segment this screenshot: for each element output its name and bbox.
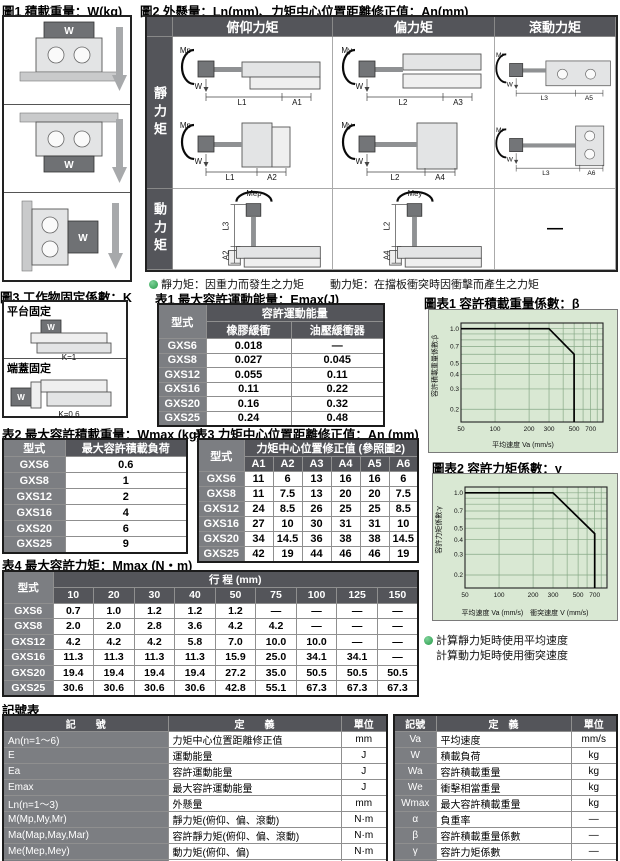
value-cell: 10.0: [296, 634, 337, 650]
value-cell: 4.2: [215, 619, 256, 635]
svg-text:300: 300: [544, 426, 555, 433]
value-cell: —: [337, 603, 378, 619]
fig2-dynamic-roll-cell: —: [495, 189, 616, 270]
value-cell: 15.9: [215, 650, 256, 666]
value-cell: 67.3: [296, 681, 337, 697]
value-cell: 4.2: [256, 619, 297, 635]
table2-model-header: 型式: [3, 439, 65, 457]
svg-text:A2: A2: [221, 251, 230, 261]
svg-text:Mep: Mep: [246, 189, 262, 198]
down-arrow-icon: [116, 119, 123, 167]
fig2-note-dynamic: 動力矩：在擋板衝突時因衝擊而產生之力矩: [330, 279, 539, 291]
definition-cell: 容許靜力矩(俯仰、偏、滾動): [168, 828, 341, 844]
definition-cell: 外懸量: [168, 796, 341, 812]
fig1-side-mount-diagram: W: [4, 193, 130, 281]
definition-cell: 動力矩(俯仰、偏): [168, 844, 341, 860]
chart2-xlabel: 平均速度 Va (mm/s) 衝突速度 V (mm/s): [433, 608, 617, 618]
value-cell: 2.0: [94, 619, 135, 635]
symbol-cell: E: [3, 748, 168, 764]
model-cell: GXS8: [3, 619, 53, 635]
value-cell: 20: [331, 487, 360, 502]
unit-cell: N·m: [341, 844, 387, 860]
value-cell: 19: [273, 547, 302, 562]
symbol-row: Emax 最大容許運動能量 J: [3, 780, 387, 796]
table-row: GXS20 19.4 19.4 19.4 19.4 27.2 35.0 50.5…: [3, 665, 418, 681]
table-row: GXS6 0.018 —: [158, 339, 384, 354]
table-row: GXS25 9: [3, 537, 187, 553]
fig3-endcap-mount-label: 端蓋固定: [7, 360, 123, 376]
dynamic-yaw-diagram: Mey L2 A4: [339, 189, 489, 269]
table-row: GXS16 0.11 0.22: [158, 382, 384, 397]
svg-text:W: W: [194, 157, 202, 166]
payload-bottom-diagram: W: [4, 105, 134, 193]
static-roll-diagram-1: Mr W L3 A5: [495, 44, 616, 106]
value-cell: 4.2: [134, 634, 175, 650]
stroke-125: 125: [337, 588, 378, 604]
model-cell: GXS25: [198, 547, 244, 562]
svg-text:Mp: Mp: [179, 121, 191, 130]
symbol-row: Va 平均速度 mm/s: [394, 732, 617, 748]
value-cell: 1.0: [94, 603, 135, 619]
unit-cell: kg: [571, 796, 617, 812]
unit-cell: mm: [341, 732, 387, 748]
table-row: GXS8 11 7.5 13 20 20 7.5: [198, 487, 418, 502]
svg-text:A3: A3: [453, 98, 463, 107]
value-cell: —: [296, 603, 337, 619]
symbol-row: We 衝擊相當重量 kg: [394, 780, 617, 796]
model-cell: GXS6: [3, 457, 65, 473]
svg-text:My: My: [341, 121, 352, 130]
symbol-cell: Emax: [3, 780, 168, 796]
symbol-cell: α: [394, 812, 436, 828]
static-pitch-diagram-2: Mp W L1 A2: [178, 115, 328, 185]
symbol-cell: β: [394, 828, 436, 844]
table3-sub-a4: A4: [331, 457, 360, 472]
table4-model-header: 型式: [3, 571, 53, 603]
value-cell: 8.5: [389, 502, 418, 517]
model-cell: GXS20: [158, 397, 206, 412]
value-cell: —: [337, 634, 378, 650]
table-mount-diagram: W K=1: [7, 319, 127, 361]
symbol-cell: Ma(Map,May,Mar): [3, 828, 168, 844]
table-row: GXS8 2.0 2.0 2.8 3.6 4.2 4.2 — — —: [3, 619, 418, 635]
definition-header: 定 義: [436, 715, 571, 732]
value-cell: 34.1: [296, 650, 337, 666]
fig3-table-mount: 平台固定 W K=1: [4, 302, 126, 359]
value-cell: 27.2: [215, 665, 256, 681]
value-cell: 11.3: [94, 650, 135, 666]
symbol-cell: W: [394, 748, 436, 764]
definition-cell: 容許積載重量係數: [436, 828, 571, 844]
fig3-diagram-box: 平台固定 W K=1 端蓋固定 W K=0.6: [2, 300, 128, 418]
value-cell: 25: [331, 502, 360, 517]
svg-text:L3: L3: [542, 170, 550, 177]
value-cell: 0.16: [206, 397, 291, 412]
table1-kinetic-energy: 型式 容許運動能量 橡膠緩衝 油壓緩衝器 GXS6 0.018 — GXS8 0…: [157, 303, 385, 427]
value-cell: 2.0: [53, 619, 94, 635]
table-row: GXS20 6: [3, 521, 187, 537]
model-cell: GXS25: [3, 681, 53, 697]
svg-text:W: W: [47, 323, 55, 332]
value-cell: 30.6: [94, 681, 135, 697]
model-cell: GXS25: [3, 537, 65, 553]
svg-text:1.0: 1.0: [450, 326, 459, 333]
unit-cell: N·m: [341, 812, 387, 828]
value-cell: 0.027: [206, 353, 291, 368]
value-cell: 14.5: [273, 532, 302, 547]
value-cell: 38: [331, 532, 360, 547]
value-cell: 14.5: [389, 532, 418, 547]
definition-cell: 運動能量: [168, 748, 341, 764]
value-cell: 4.2: [94, 634, 135, 650]
value-cell: 19.4: [53, 665, 94, 681]
svg-text:W: W: [17, 393, 25, 402]
chart1-panel: 容許積載重量係數:β 501002003005007001.00.70.50.4…: [428, 309, 618, 453]
svg-text:0.7: 0.7: [454, 508, 463, 515]
value-cell: 36: [302, 532, 331, 547]
value-cell: 11.3: [134, 650, 175, 666]
svg-text:300: 300: [548, 592, 559, 599]
definition-cell: 靜力矩(俯仰、偏、滾動): [168, 812, 341, 828]
value-cell: 4.2: [53, 634, 94, 650]
svg-text:A4: A4: [435, 173, 445, 182]
value-cell: 19: [389, 547, 418, 562]
svg-text:L3: L3: [221, 222, 230, 231]
svg-text:0.3: 0.3: [454, 551, 463, 558]
fig2-corner-cell: [147, 17, 173, 37]
table-row: GXS12 2: [3, 489, 187, 505]
payload-top-diagram: W: [4, 17, 134, 105]
fig1-horizontal-mount-diagram: W: [4, 17, 130, 105]
value-cell: 13: [302, 487, 331, 502]
svg-text:500: 500: [569, 426, 580, 433]
model-cell: GXS6: [3, 603, 53, 619]
fig3-endcap-mount: 端蓋固定 W K=0.6: [4, 359, 126, 416]
fig2-static-roll-cell: Mr W L3 A5 Mr W L3 A6: [495, 37, 616, 189]
stroke-150: 150: [377, 588, 418, 604]
svg-text:50: 50: [457, 426, 465, 433]
value-cell: 11: [244, 472, 273, 487]
svg-text:Mr: Mr: [496, 127, 505, 134]
svg-text:700: 700: [585, 426, 596, 433]
table-row: GXS16 4: [3, 505, 187, 521]
svg-text:W: W: [78, 233, 88, 244]
svg-text:W: W: [507, 81, 514, 88]
svg-text:Mp: Mp: [179, 46, 191, 55]
definition-cell: 容許力矩係數: [436, 844, 571, 860]
fig2-row-static: 靜力矩: [147, 37, 173, 189]
svg-text:200: 200: [528, 592, 539, 599]
symbol-row: γ 容許力矩係數 —: [394, 844, 617, 860]
svg-text:0.3: 0.3: [450, 386, 459, 393]
value-cell: 31: [331, 517, 360, 532]
value-cell: —: [377, 634, 418, 650]
value-cell: 1.2: [134, 603, 175, 619]
unit-cell: J: [341, 764, 387, 780]
value-cell: —: [291, 339, 384, 354]
value-cell: 19.4: [94, 665, 135, 681]
chart1-xlabel: 平均速度 Va (mm/s): [429, 440, 617, 450]
down-arrow-icon: [112, 203, 119, 253]
value-cell: —: [256, 603, 297, 619]
payload-side-diagram: W: [4, 193, 134, 281]
svg-text:L1: L1: [225, 173, 234, 182]
table-row: GXS16 27 10 30 31 31 10: [198, 517, 418, 532]
stroke-40: 40: [175, 588, 216, 604]
symbol-cell: Wa: [394, 764, 436, 780]
svg-text:W: W: [355, 157, 363, 166]
value-cell: 9: [65, 537, 187, 553]
definition-cell: 最大容許運動能量: [168, 780, 341, 796]
table-row: GXS12 4.2 4.2 4.2 5.8 7.0 10.0 10.0 — —: [3, 634, 418, 650]
svg-text:L1: L1: [237, 98, 246, 107]
symbol-row: α 負重率 —: [394, 812, 617, 828]
table3-sub-a5: A5: [360, 457, 389, 472]
value-cell: 24: [244, 502, 273, 517]
model-cell: GXS12: [3, 489, 65, 505]
definition-header: 定 義: [168, 715, 341, 732]
symbol-cell: Me(Mep,Mey): [3, 844, 168, 860]
down-arrow-icon: [116, 27, 123, 75]
value-cell: 44: [302, 547, 331, 562]
table3-moment-correction: 型式 力矩中心位置修正值 (參照圖2) A1 A2 A3 A4 A5 A6 GX…: [197, 438, 419, 563]
value-cell: 67.3: [377, 681, 418, 697]
table-row: GXS6 0.7 1.0 1.2 1.2 1.2 — — — —: [3, 603, 418, 619]
value-cell: 7.5: [273, 487, 302, 502]
svg-text:W: W: [64, 160, 74, 171]
svg-text:L2: L2: [398, 98, 407, 107]
value-cell: 46: [360, 547, 389, 562]
unit-header: 單位: [571, 715, 617, 732]
chart2-panel: 容許力矩係數:γ 501002003005007001.00.70.50.40.…: [432, 473, 618, 621]
green-dot-icon: [149, 280, 158, 289]
model-cell: GXS20: [198, 532, 244, 547]
unit-cell: J: [341, 780, 387, 796]
unit-cell: —: [571, 812, 617, 828]
value-cell: —: [337, 619, 378, 635]
svg-text:0.5: 0.5: [454, 525, 463, 532]
symbol-cell: Ln(n=1～3): [3, 796, 168, 812]
table3-sub-a2: A2: [273, 457, 302, 472]
value-cell: 34: [244, 532, 273, 547]
fig2-col-roll: 滾動力矩: [495, 17, 616, 37]
static-yaw-diagram-1: My W L2 A3: [339, 40, 489, 110]
value-cell: 38: [360, 532, 389, 547]
value-cell: 30: [302, 517, 331, 532]
value-cell: 30.6: [134, 681, 175, 697]
symbol-row: Ea 容許運動能量 J: [3, 764, 387, 780]
value-cell: 31: [360, 517, 389, 532]
svg-text:L3: L3: [541, 95, 549, 102]
value-cell: —: [377, 619, 418, 635]
table-row: GXS25 30.6 30.6 30.6 30.6 42.8 55.1 67.3…: [3, 681, 418, 697]
catalog-page: 圖1 積載重量：W(kg) W W: [0, 0, 620, 861]
value-cell: —: [296, 619, 337, 635]
stroke-50: 50: [215, 588, 256, 604]
model-cell: GXS20: [3, 665, 53, 681]
table-row: GXS8 0.027 0.045: [158, 353, 384, 368]
value-cell: 1.2: [175, 603, 216, 619]
value-cell: 4: [65, 505, 187, 521]
definition-cell: 力矩中心位置距離修正值: [168, 732, 341, 748]
fig1-inverted-mount-diagram: W: [4, 105, 130, 193]
value-cell: 1.2: [215, 603, 256, 619]
chart2-plot: 501002003005007001.00.70.50.40.30.2: [441, 481, 615, 603]
definition-cell: 積載負荷: [436, 748, 571, 764]
table-row: GXS8 1: [3, 473, 187, 489]
svg-text:My: My: [341, 46, 352, 55]
table2-max-payload: 型式 最大容許積載負荷 GXS6 0.6 GXS8 1 GXS12 2: [2, 438, 188, 554]
symbol-cell: M(Mp,My,Mr): [3, 812, 168, 828]
value-cell: 5.8: [175, 634, 216, 650]
svg-text:L2: L2: [390, 173, 399, 182]
svg-text:Mey: Mey: [407, 189, 422, 198]
symbol-table-right: 記號 定 義 單位 Va 平均速度 mm/s W 積載負荷 kg: [393, 714, 618, 861]
definition-cell: 平均速度: [436, 732, 571, 748]
model-cell: GXS12: [158, 368, 206, 383]
fig2-static-pitch-cell: Mp W L1 A1 Mp W L1 A2: [173, 37, 333, 189]
svg-text:W: W: [194, 82, 202, 91]
value-cell: 11.3: [53, 650, 94, 666]
svg-text:0.5: 0.5: [450, 361, 459, 368]
svg-text:0.4: 0.4: [454, 537, 463, 544]
model-cell: GXS8: [3, 473, 65, 489]
definition-cell: 最大容許積載重量: [436, 796, 571, 812]
value-cell: 6: [389, 472, 418, 487]
table3-model-header: 型式: [198, 439, 244, 472]
fig2-moment-table: 俯仰力矩 偏力矩 滾動力矩 靜力矩 Mp W L1 A1 Mp: [145, 15, 618, 272]
fig2-col-yaw: 偏力矩: [333, 17, 495, 37]
value-cell: 1: [65, 473, 187, 489]
value-cell: 42.8: [215, 681, 256, 697]
symbol-row: Me(Mep,Mey) 動力矩(俯仰、偏) N·m: [3, 844, 387, 860]
value-cell: 16: [331, 472, 360, 487]
value-cell: 10: [273, 517, 302, 532]
model-cell: GXS6: [158, 339, 206, 354]
unit-cell: kg: [571, 748, 617, 764]
svg-text:A5: A5: [585, 95, 593, 102]
value-cell: 0.7: [53, 603, 94, 619]
value-cell: 13: [302, 472, 331, 487]
chart2-note-2: 計算動力矩時使用衝突速度: [436, 647, 568, 663]
fig2-dynamic-yaw-cell: Mey L2 A4: [333, 189, 495, 270]
svg-text:K=0.6: K=0.6: [58, 410, 80, 418]
table-row: GXS20 34 14.5 36 38 38 14.5: [198, 532, 418, 547]
fig2-dynamic-pitch-cell: Mep L3 A2: [173, 189, 333, 270]
stroke-100: 100: [296, 588, 337, 604]
stroke-10: 10: [53, 588, 94, 604]
value-cell: 11.3: [175, 650, 216, 666]
definition-cell: 負重率: [436, 812, 571, 828]
symbol-table-left: 記 號 定 義 單位 An(n=1～6) 力矩中心位置距離修正值 mm E 運動…: [2, 714, 388, 861]
symbol-cell: Va: [394, 732, 436, 748]
static-pitch-diagram-1: Mp W L1 A1: [178, 40, 328, 110]
model-cell: GXS12: [198, 502, 244, 517]
value-cell: 25.0: [256, 650, 297, 666]
svg-text:W: W: [507, 157, 514, 164]
model-cell: GXS12: [3, 634, 53, 650]
value-cell: 50.5: [337, 665, 378, 681]
svg-text:0.4: 0.4: [450, 372, 459, 379]
symbol-header: 記 號: [3, 715, 168, 732]
fig3-table-mount-label: 平台固定: [7, 303, 123, 319]
dynamic-pitch-diagram: Mep L3 A2: [178, 189, 328, 269]
static-roll-diagram-2: Mr W L3 A6: [495, 119, 616, 181]
svg-text:0.7: 0.7: [450, 344, 459, 351]
symbol-row: Ma(Map,May,Mar) 容許靜力矩(俯仰、偏、滾動) N·m: [3, 828, 387, 844]
value-cell: 20: [360, 487, 389, 502]
table3-group-header: 力矩中心位置修正值 (參照圖2): [244, 439, 418, 457]
table4-group-header: 行 程 (mm): [53, 571, 418, 588]
svg-text:200: 200: [524, 426, 535, 433]
value-cell: 30.6: [53, 681, 94, 697]
fig2-row-dynamic: 動力矩: [147, 189, 173, 270]
stroke-20: 20: [94, 588, 135, 604]
value-cell: 7.5: [389, 487, 418, 502]
svg-text:W: W: [64, 26, 74, 37]
symbol-row: E 運動能量 J: [3, 748, 387, 764]
value-cell: 0.018: [206, 339, 291, 354]
table-row: GXS6 11 6 13 16 16 6: [198, 472, 418, 487]
value-cell: 2.8: [134, 619, 175, 635]
symbol-row: W 積載負荷 kg: [394, 748, 617, 764]
symbol-cell: An(n=1～6): [3, 732, 168, 748]
fig2-col-pitch: 俯仰力矩: [173, 17, 333, 37]
unit-header: 單位: [341, 715, 387, 732]
model-cell: GXS8: [198, 487, 244, 502]
table1-sub-hydraulic: 油壓緩衝器: [291, 322, 384, 339]
value-cell: 27: [244, 517, 273, 532]
static-yaw-diagram-2: My W L2 A4: [339, 115, 489, 185]
value-cell: 34.1: [337, 650, 378, 666]
unit-cell: mm/s: [571, 732, 617, 748]
table1-model-header: 型式: [158, 304, 206, 339]
svg-text:100: 100: [490, 426, 501, 433]
symbol-cell: Ea: [3, 764, 168, 780]
unit-cell: J: [341, 748, 387, 764]
endcap-mount-diagram: W K=0.6: [7, 376, 127, 418]
value-cell: 19.4: [175, 665, 216, 681]
symbol-cell: We: [394, 780, 436, 796]
value-cell: 0.32: [291, 397, 384, 412]
svg-text:W: W: [355, 82, 363, 91]
svg-text:100: 100: [494, 592, 505, 599]
svg-text:Mr: Mr: [496, 52, 505, 59]
table-row: GXS25 42 19 44 46 46 19: [198, 547, 418, 562]
symbol-header: 記號: [394, 715, 436, 732]
unit-cell: N·m: [341, 828, 387, 844]
fig1-diagram-box: W W: [2, 15, 132, 282]
symbol-cell: γ: [394, 844, 436, 860]
model-cell: GXS20: [3, 521, 65, 537]
value-cell: 0.045: [291, 353, 384, 368]
symbol-row: Wa 容許積載重量 kg: [394, 764, 617, 780]
stroke-30: 30: [134, 588, 175, 604]
model-cell: GXS8: [158, 353, 206, 368]
stroke-75: 75: [256, 588, 297, 604]
value-cell: 0.055: [206, 368, 291, 383]
value-cell: —: [377, 650, 418, 666]
symbol-row: An(n=1～6) 力矩中心位置距離修正值 mm: [3, 732, 387, 748]
svg-text:0.2: 0.2: [454, 572, 463, 579]
model-cell: GXS16: [3, 505, 65, 521]
dash-placeholder: —: [547, 220, 563, 238]
value-cell: 0.11: [291, 368, 384, 383]
svg-text:A1: A1: [292, 98, 302, 107]
value-cell: 0.6: [65, 457, 187, 473]
table1-group-header: 容許運動能量: [206, 304, 384, 322]
unit-cell: kg: [571, 764, 617, 780]
